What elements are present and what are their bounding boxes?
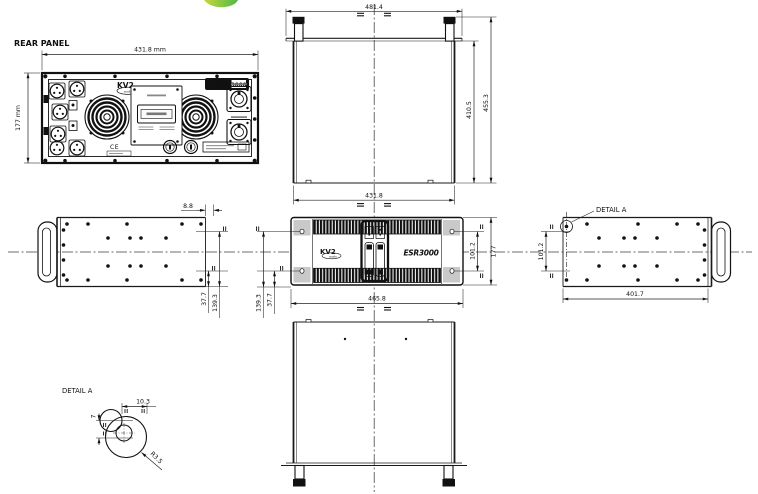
dim-right-101-2: 101.2	[538, 243, 545, 261]
front-width-dimension: 465.8	[291, 289, 463, 310]
green-swoosh-logo-fragment	[204, 0, 238, 7]
dim-left-139-3: 139.3	[212, 294, 219, 312]
dim-8-8: 8.8	[183, 203, 193, 210]
rack-ear-right	[444, 17, 456, 41]
drawing-svg: REAR PANEL 431.8 mm 177 mm	[0, 0, 758, 494]
front-view: KV2 audio ESR3000 139.3	[256, 218, 498, 319]
detail-a-title: DETAIL A	[62, 387, 93, 395]
detail-width-dimension: 10.3	[122, 399, 156, 415]
dim-front-139-3: 139.3	[256, 294, 263, 312]
detail-radius-dimension: R3.5	[142, 450, 164, 470]
dim-401-7: 401.7	[626, 291, 644, 298]
dim-r3-5: R3.5	[149, 450, 164, 465]
technical-drawing-page: REAR PANEL 431.8 mm 177 mm	[0, 0, 758, 494]
ce-mark: CE	[110, 144, 119, 151]
rear-width-dimension: 431.8 mm	[42, 47, 258, 71]
channel-b-tag	[44, 127, 49, 135]
channel-a-tag	[44, 95, 49, 103]
dim-410-5: 410.5	[466, 101, 473, 119]
detail-a-view: DETAIL A 10.3 7	[62, 387, 164, 470]
dim-465-8: 465.8	[368, 296, 386, 303]
dim-front-37-7: 37.7	[267, 293, 274, 307]
left-rear-offset-dimension: 8.8	[181, 203, 222, 216]
front-audio-text: audio	[329, 255, 337, 259]
detail-a-callout-text: DETAIL A	[596, 206, 627, 214]
dim-431-8: 431.8	[365, 193, 383, 200]
top-view: 481.4 431.8 455.3	[286, 4, 497, 206]
dim-left-37-7: 37.7	[201, 292, 208, 306]
badge-model-text: ESR	[211, 81, 228, 90]
left-side-view: 8.8 37.7 139.3	[38, 203, 228, 318]
top-overall-depth-dimension: 455.3	[456, 17, 497, 183]
subpanel-heading-text-bar	[147, 95, 166, 97]
top-body-depth-dimension: 410.5	[455, 41, 479, 183]
mains-subpanel	[131, 86, 182, 145]
dim-455-3: 455.3	[483, 94, 490, 112]
dim-front-101-2: 101.2	[470, 242, 477, 260]
front-model-logo: ESR3000	[403, 249, 438, 258]
rack-ear-bottom-right	[443, 466, 456, 487]
right-side-view: DETAIL A 101.2 401.7	[538, 206, 731, 303]
rack-ear-left	[293, 17, 305, 41]
dim-front-177: 177	[491, 246, 498, 258]
rear-panel-label: REAR PANEL	[14, 39, 69, 48]
serial-label	[107, 151, 131, 156]
rating-label-strip	[203, 142, 249, 152]
dim-10-3: 10.3	[136, 399, 150, 406]
right-length-dimension: 401.7	[563, 289, 708, 304]
detail-a-outer-radius	[106, 417, 147, 458]
dim-481-4: 481.4	[365, 4, 383, 11]
dim-7: 7	[91, 414, 98, 418]
rear-height-dim-text: 177 mm	[15, 105, 22, 131]
rear-height-dimension: 177 mm	[15, 73, 40, 163]
detail-a-callout: DETAIL A	[572, 206, 627, 222]
rear-width-dim-text: 431.8 mm	[134, 47, 166, 54]
rear-panel-view: REAR PANEL 431.8 mm 177 mm	[14, 39, 258, 163]
left-hole-dimensions: 37.7 139.3	[196, 227, 228, 319]
rack-ear-bottom-left	[293, 466, 306, 487]
